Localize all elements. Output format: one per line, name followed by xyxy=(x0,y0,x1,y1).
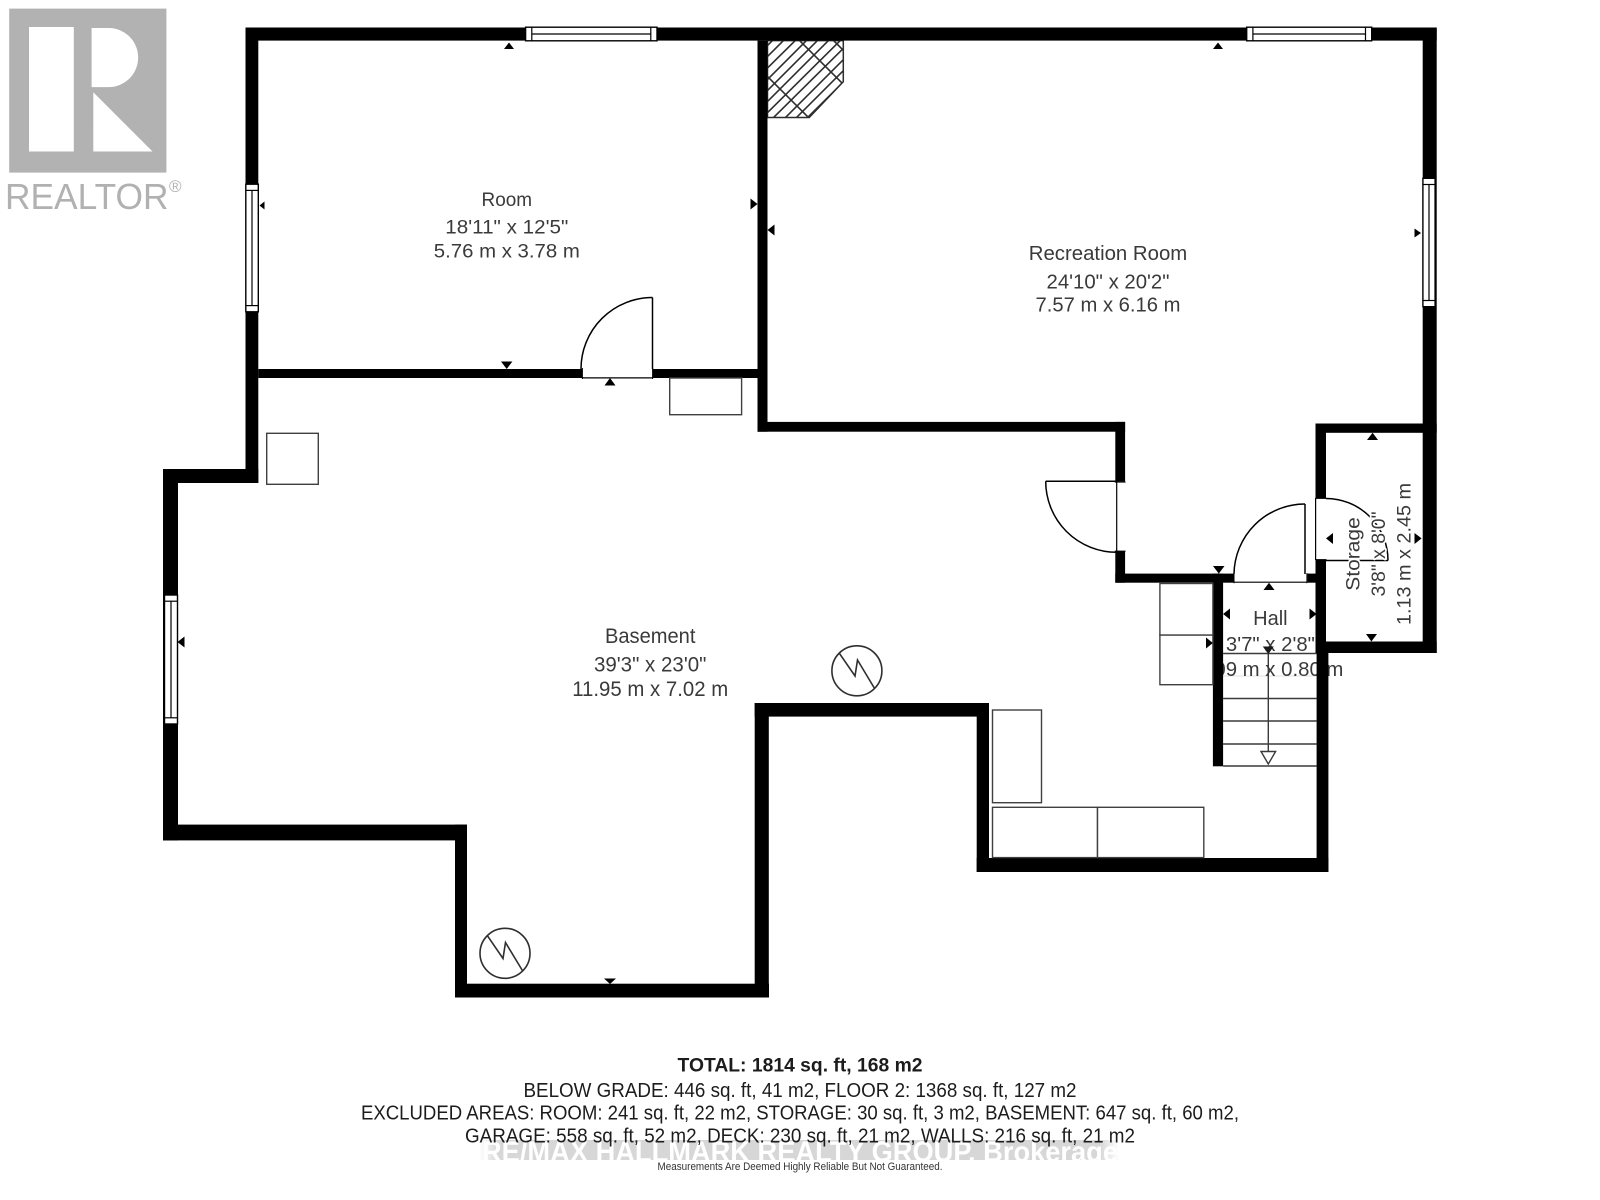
svg-text:24'10" x 20'2": 24'10" x 20'2" xyxy=(1047,271,1170,294)
svg-text:BELOW GRADE: 446 sq. ft, 41 m2: BELOW GRADE: 446 sq. ft, 41 m2, FLOOR 2:… xyxy=(524,1080,1077,1102)
svg-text:3'8" x 8'0": 3'8" x 8'0" xyxy=(1368,511,1390,596)
svg-text:Room: Room xyxy=(482,190,533,211)
svg-text:Hall: Hall xyxy=(1253,607,1288,630)
svg-text:GARAGE: 558 sq. ft, 52 m2, DEC: GARAGE: 558 sq. ft, 52 m2, DECK: 230 sq.… xyxy=(465,1126,1135,1148)
svg-text:Measurements Are Deemed Highly: Measurements Are Deemed Highly Reliable … xyxy=(658,1161,943,1173)
svg-text:7.57 m x 6.16 m: 7.57 m x 6.16 m xyxy=(1036,293,1181,316)
svg-text:1.13 m x 2.45 m: 1.13 m x 2.45 m xyxy=(1394,483,1416,625)
svg-text:Recreation Room: Recreation Room xyxy=(1029,242,1188,265)
svg-text:5.76 m x 3.78 m: 5.76 m x 3.78 m xyxy=(434,242,580,263)
svg-text:EXCLUDED AREAS: ROOM: 241 sq.: EXCLUDED AREAS: ROOM: 241 sq. ft, 22 m2,… xyxy=(361,1103,1239,1125)
svg-text:11.95 m x 7.02 m: 11.95 m x 7.02 m xyxy=(572,678,728,701)
svg-text:Storage: Storage xyxy=(1343,517,1365,591)
svg-text:39'3" x 23'0": 39'3" x 23'0" xyxy=(594,654,707,677)
svg-text:TOTAL: 1814 sq. ft, 168 m2: TOTAL: 1814 sq. ft, 168 m2 xyxy=(678,1054,923,1076)
svg-text:18'11" x 12'5": 18'11" x 12'5" xyxy=(445,218,568,239)
svg-text:3'7" x 2'8": 3'7" x 2'8" xyxy=(1226,633,1315,656)
svg-text:®: ® xyxy=(169,177,182,196)
svg-text:REALTOR: REALTOR xyxy=(5,176,169,217)
svg-text:Basement: Basement xyxy=(605,625,696,648)
